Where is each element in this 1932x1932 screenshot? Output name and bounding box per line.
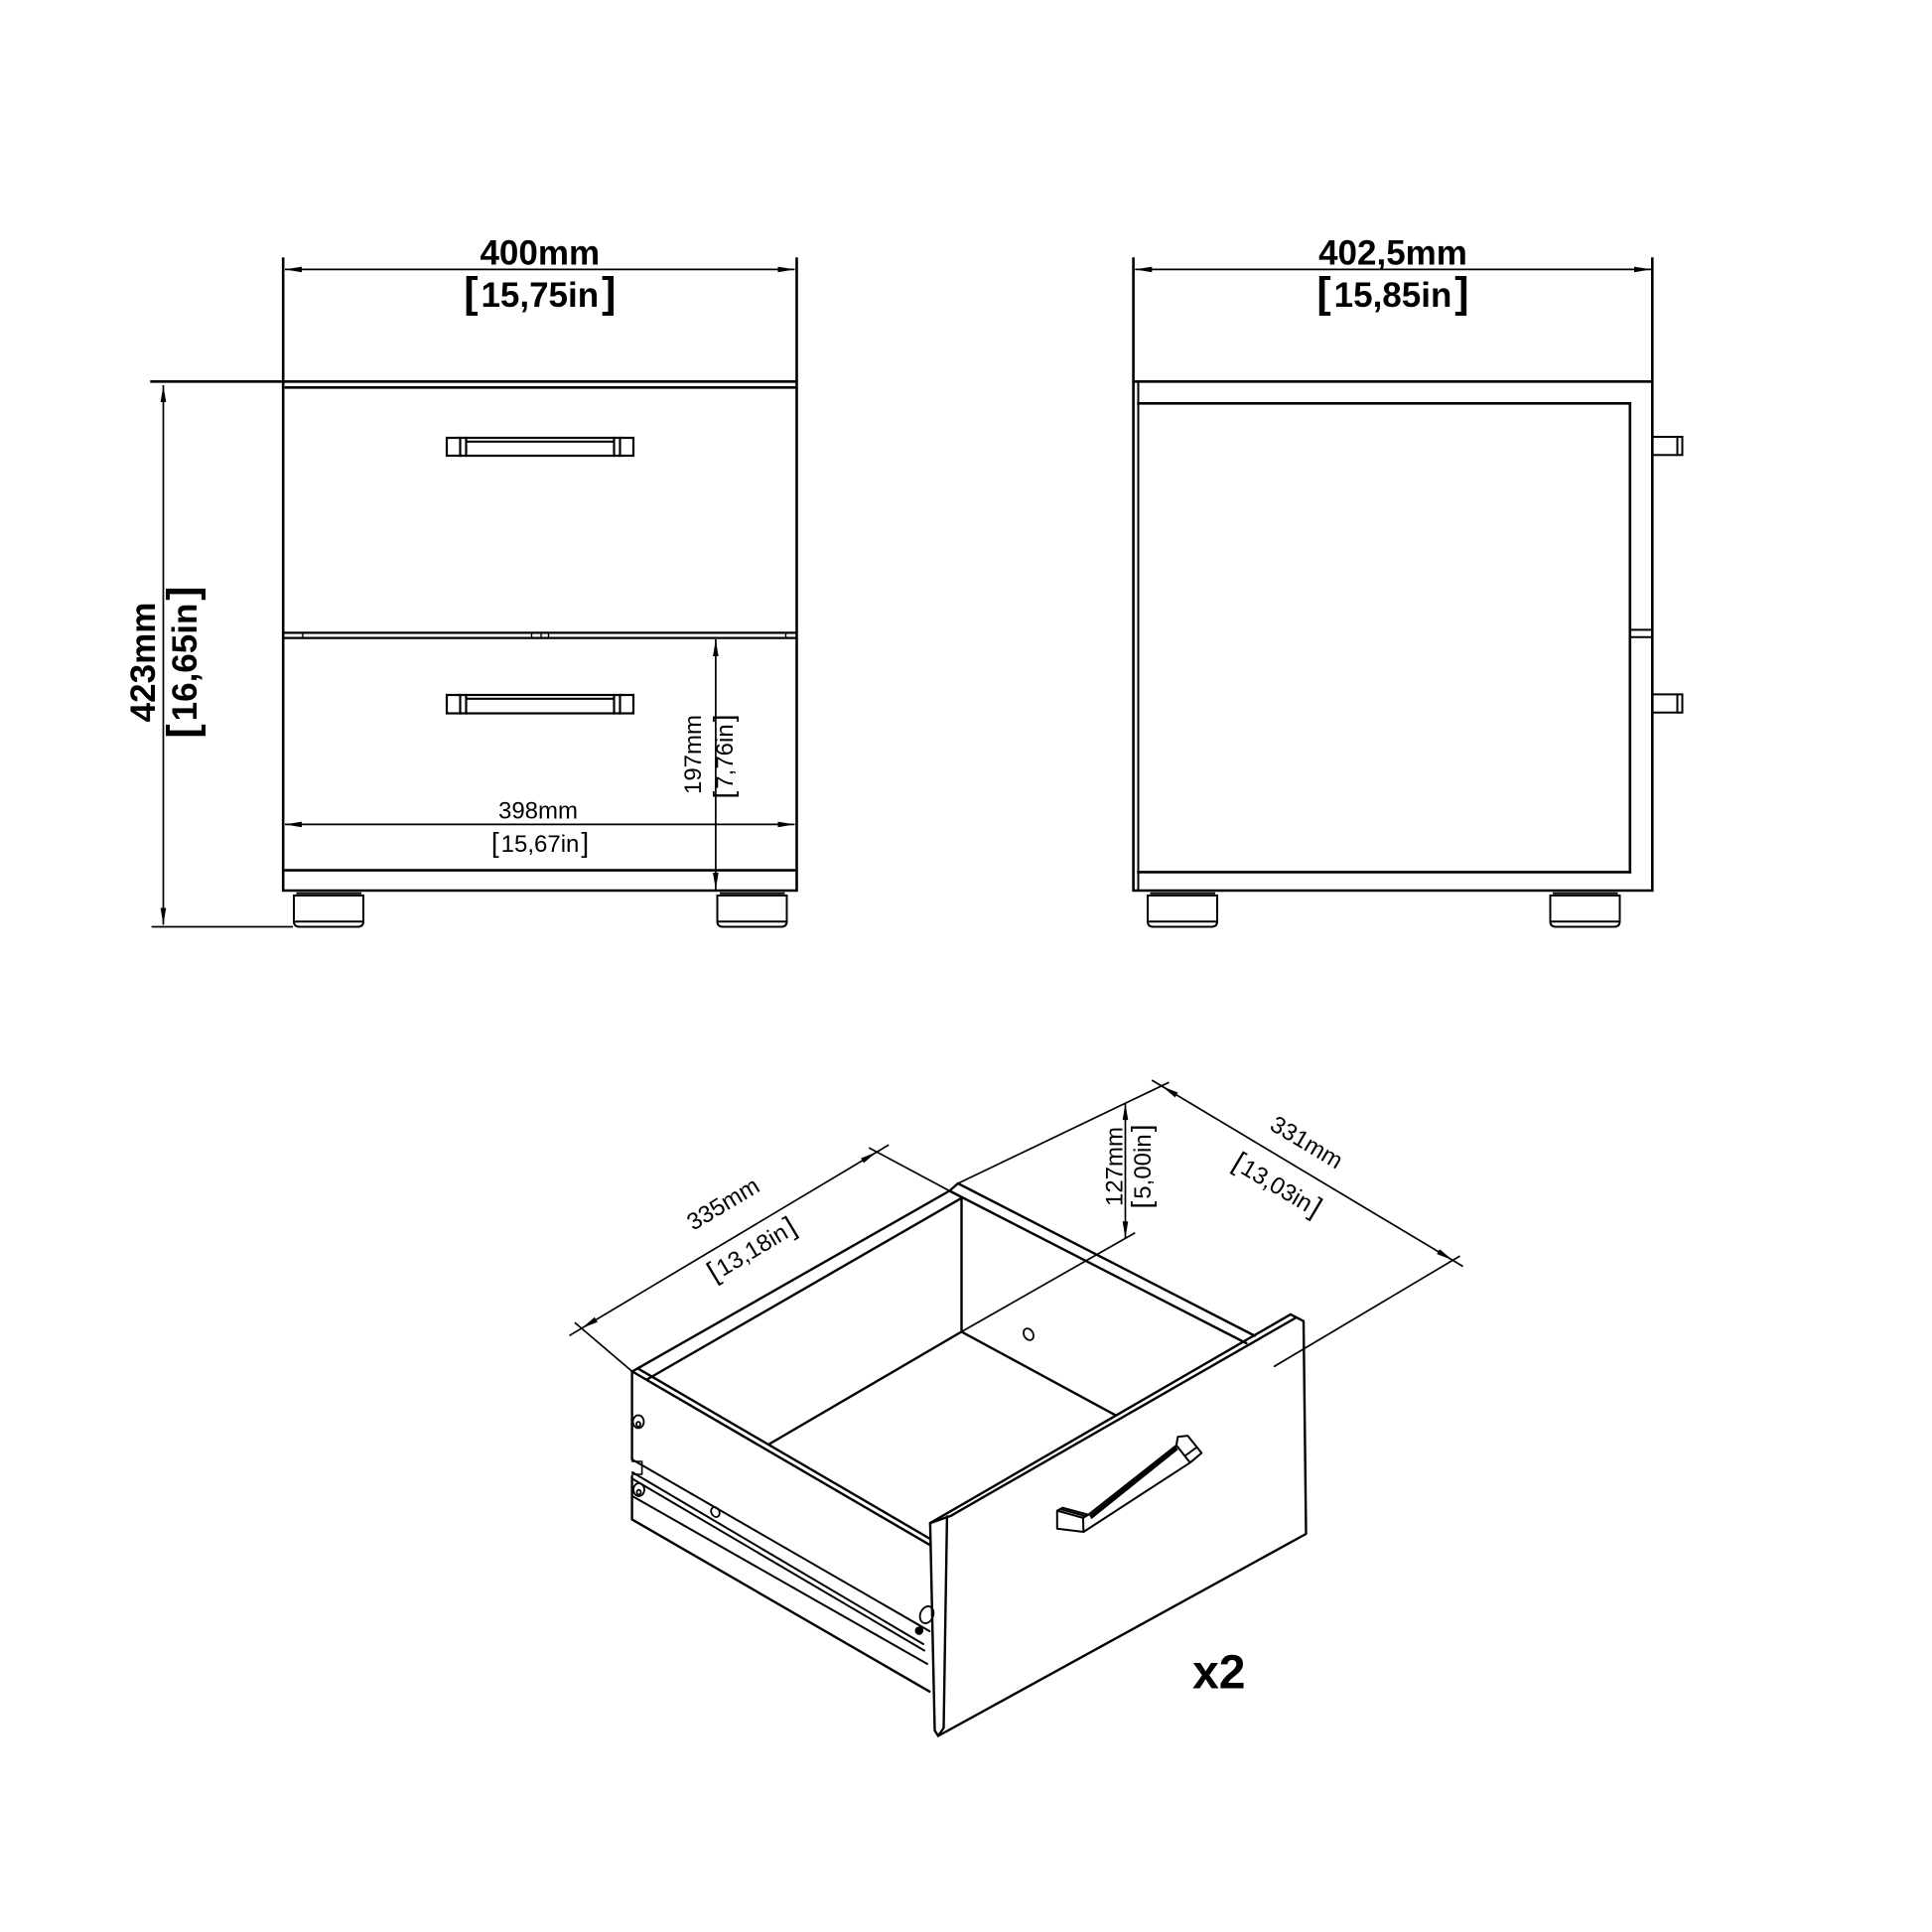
svg-text:x2: x2	[1192, 1646, 1245, 1699]
svg-text:[ 15,67in ]: [ 15,67in ]	[491, 827, 589, 858]
svg-text:127mm: 127mm	[1102, 1127, 1129, 1206]
svg-text:[ 15,85in ]: [ 15,85in ]	[1316, 269, 1468, 317]
svg-text:423mm: 423mm	[124, 603, 163, 723]
svg-text:[ 7,76in ]: [ 7,76in ]	[708, 715, 739, 799]
svg-text:398mm: 398mm	[498, 798, 578, 825]
svg-text:400mm: 400mm	[480, 234, 600, 273]
svg-text:402,5mm: 402,5mm	[1318, 234, 1467, 273]
svg-text:[ 5,00in ]: [ 5,00in ]	[1126, 1125, 1157, 1209]
svg-text:197mm: 197mm	[680, 715, 707, 794]
svg-text:[ 15,75in ]: [ 15,75in ]	[464, 269, 616, 317]
svg-text:[ 16,65in ]: [ 16,65in ]	[159, 586, 207, 738]
